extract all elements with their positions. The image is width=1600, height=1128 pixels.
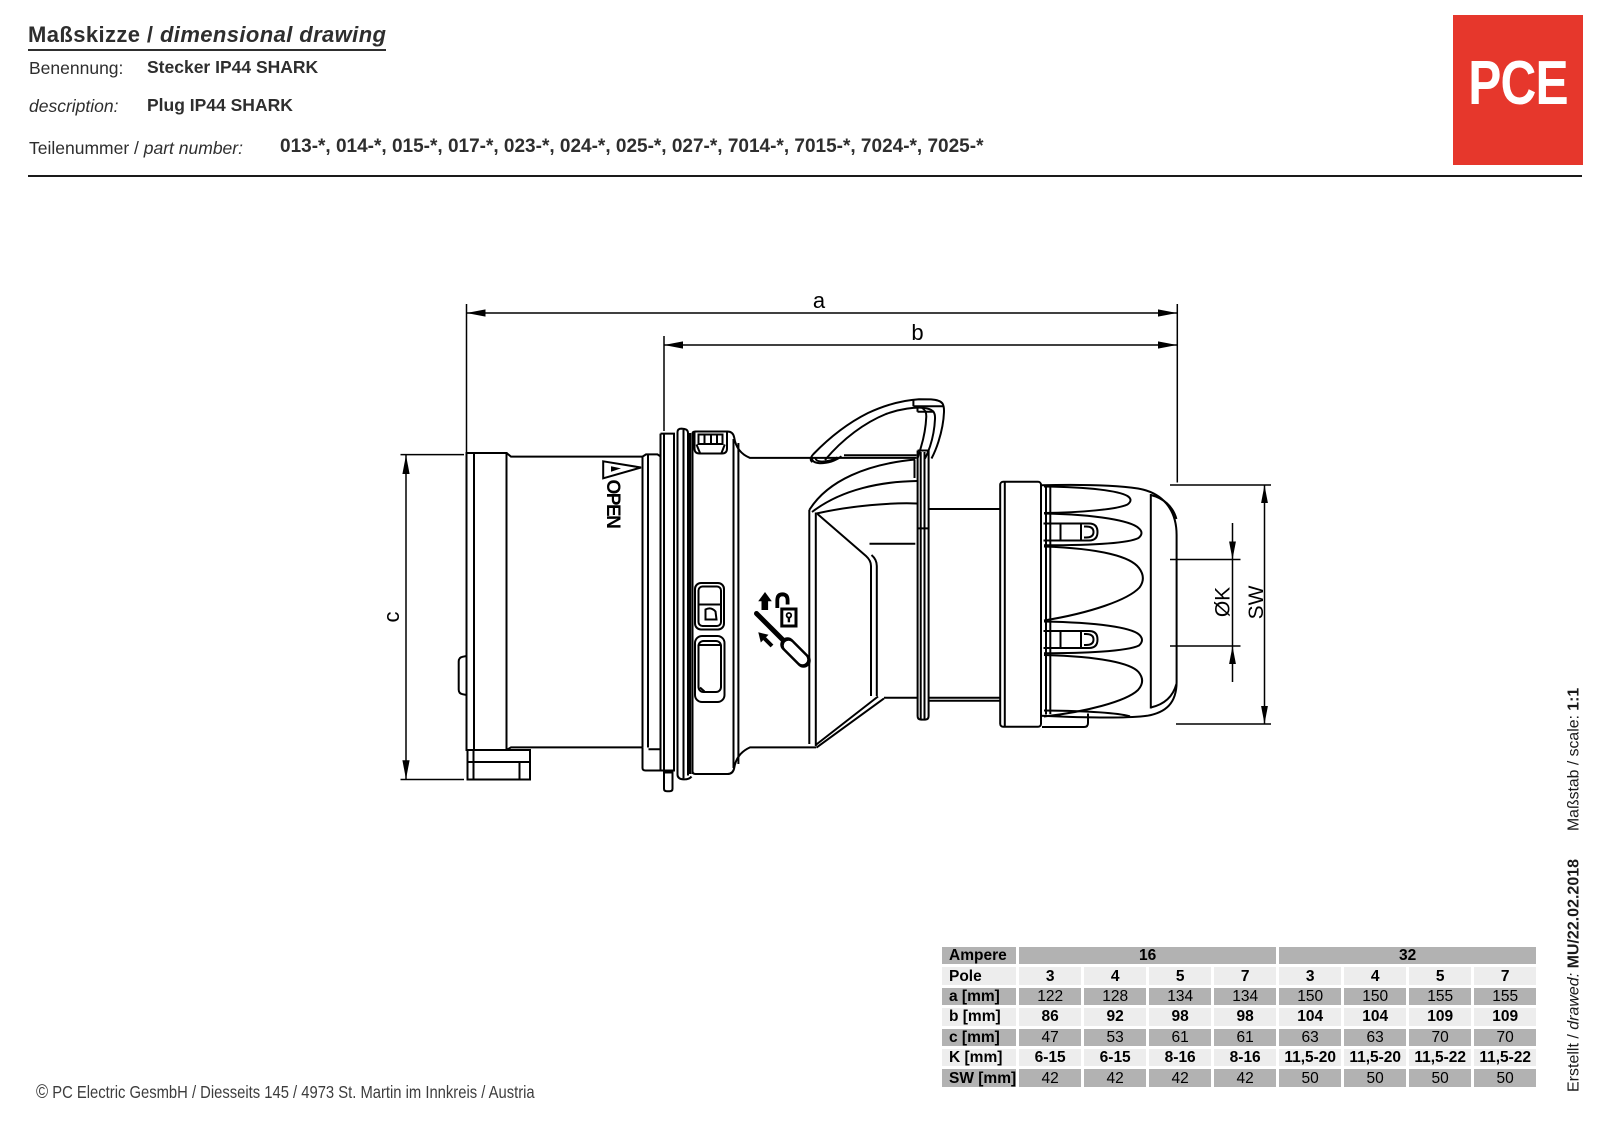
svg-text:Erstellt / drawed: MU/22.02.20: Erstellt / drawed: MU/22.02.2018 xyxy=(1566,859,1583,1092)
svg-text:Maßstab / scale: 1:1: Maßstab / scale: 1:1 xyxy=(1566,688,1583,831)
svg-text:ØK: ØK xyxy=(1212,587,1235,617)
svg-text:b: b xyxy=(911,320,923,345)
svg-text:OPEN: OPEN xyxy=(602,480,623,529)
svg-text:c: c xyxy=(379,612,404,623)
svg-text:SW: SW xyxy=(1245,585,1268,619)
svg-text:a: a xyxy=(813,288,826,313)
